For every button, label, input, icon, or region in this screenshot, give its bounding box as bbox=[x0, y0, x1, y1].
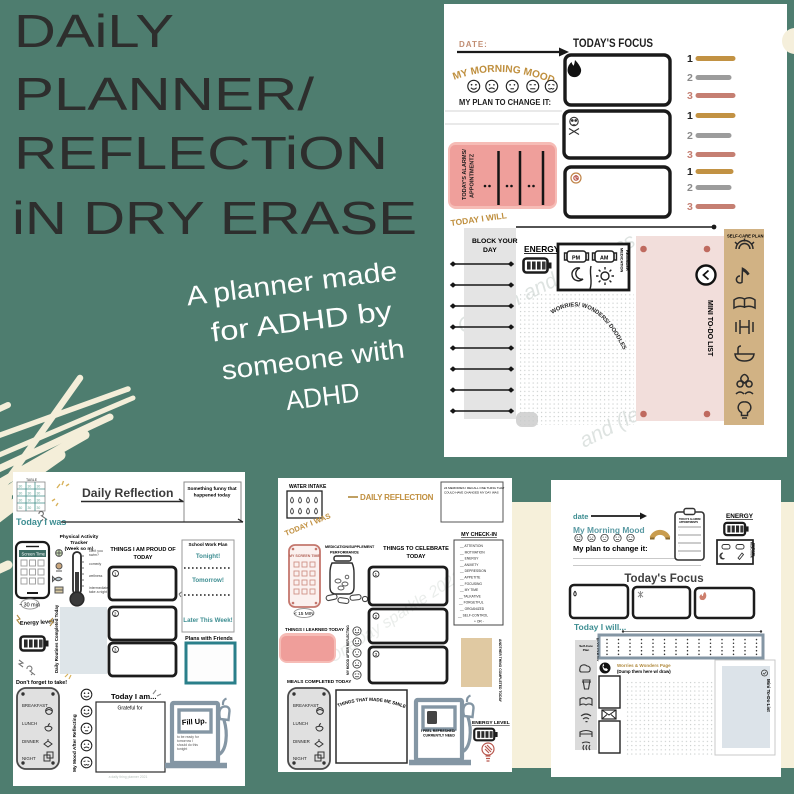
svg-text:MEDICATION: MEDICATION bbox=[620, 248, 625, 273]
svg-text:PLANNER/: PLANNER/ bbox=[14, 68, 314, 120]
svg-text:WATER INTAKE: WATER INTAKE bbox=[289, 484, 327, 490]
svg-text:DAILY REFLECTION: DAILY REFLECTION bbox=[360, 493, 434, 502]
svg-text:Today I am...: Today I am... bbox=[111, 692, 156, 701]
svg-text:Something funny that: Something funny that bbox=[187, 486, 237, 492]
svg-text:MY CHECK-IN: MY CHECK-IN bbox=[461, 532, 497, 538]
svg-text:30: 30 bbox=[37, 492, 41, 496]
svg-text:30: 30 bbox=[28, 485, 32, 489]
svg-text:take a night: take a night bbox=[89, 590, 107, 594]
svg-text:TODAY: TODAY bbox=[407, 554, 426, 560]
svg-text:swim?: swim? bbox=[89, 553, 99, 557]
svg-text:MINI TO-DO LIST: MINI TO-DO LIST bbox=[706, 300, 713, 357]
svg-text:Daily Routines Completed Today: Daily Routines Completed Today bbox=[54, 604, 59, 673]
svg-text:ENERGY: ENERGY bbox=[726, 513, 754, 520]
svg-text:TABLE: TABLE bbox=[26, 478, 38, 482]
svg-text:ENERGY: ENERGY bbox=[524, 244, 560, 254]
svg-text:30: 30 bbox=[19, 492, 23, 496]
svg-text:3: 3 bbox=[687, 149, 693, 161]
svg-text:COULD HAVE CHANGED MY DAY WAS: COULD HAVE CHANGED MY DAY WAS bbox=[444, 491, 499, 495]
svg-text:iN DRY ERASE: iN DRY ERASE bbox=[12, 192, 417, 244]
svg-text:MY PLAN TO CHANGE IT:: MY PLAN TO CHANGE IT: bbox=[459, 97, 551, 107]
svg-text:Plans with Friends: Plans with Friends bbox=[185, 636, 233, 642]
svg-text:__ ENERGY: __ ENERGY bbox=[459, 557, 479, 561]
svg-text:I FEEL REFRESHED/: I FEEL REFRESHED/ bbox=[421, 729, 455, 733]
svg-text:Physical Activity: Physical Activity bbox=[60, 534, 99, 540]
svg-text:__ APPETITE: __ APPETITE bbox=[459, 576, 481, 580]
svg-text:THINGS I AM PROUD OF: THINGS I AM PROUD OF bbox=[110, 547, 176, 553]
svg-text:1: 1 bbox=[687, 53, 693, 65]
svg-text:30: 30 bbox=[19, 485, 23, 489]
svg-text:__ FOCUSING: __ FOCUSING bbox=[459, 582, 482, 586]
svg-text:30: 30 bbox=[28, 499, 32, 503]
svg-text:(Dump them here w/ draw): (Dump them here w/ draw) bbox=[617, 669, 671, 674]
svg-text:3: 3 bbox=[687, 90, 693, 102]
svg-text:PM: PM bbox=[572, 256, 581, 262]
svg-text:Tomorrow!: Tomorrow! bbox=[192, 577, 224, 584]
svg-text:2: 2 bbox=[687, 130, 693, 142]
svg-text:DAiLY: DAiLY bbox=[14, 5, 174, 57]
svg-text:MY SCREEN TIME: MY SCREEN TIME bbox=[289, 554, 320, 558]
svg-text:REMINDER: REMINDER bbox=[625, 250, 630, 271]
svg-text:30: 30 bbox=[37, 499, 41, 503]
svg-text:tonight: tonight bbox=[177, 747, 187, 751]
svg-text:1: 1 bbox=[687, 166, 693, 178]
svg-text:30: 30 bbox=[28, 492, 32, 496]
svg-text:THINGS TO CELEBRATE: THINGS TO CELEBRATE bbox=[383, 546, 449, 552]
svg-text:a daily thing planner 2021: a daily thing planner 2021 bbox=[109, 775, 148, 779]
svg-text:3: 3 bbox=[687, 201, 693, 213]
svg-text:__ DEPRESSION: __ DEPRESSION bbox=[459, 569, 487, 573]
svg-text:CURRENTLY NEED: CURRENTLY NEED bbox=[423, 734, 455, 738]
svg-text:__ TALKATIVE: __ TALKATIVE bbox=[458, 594, 482, 598]
svg-text:My Mood After Reflecting: My Mood After Reflecting bbox=[72, 714, 78, 772]
svg-text:1: 1 bbox=[687, 110, 693, 122]
svg-text:~ 30 min: ~ 30 min bbox=[19, 603, 40, 609]
svg-text:__ MOTIVATION: __ MOTIVATION bbox=[459, 550, 485, 554]
svg-text:30: 30 bbox=[37, 506, 41, 510]
svg-text:__ FORGETFUL: __ FORGETFUL bbox=[458, 601, 484, 605]
svg-text:Worries & Wonders Page: Worries & Wonders Page bbox=[617, 663, 671, 668]
svg-text:SELF-CARE PLAN: SELF-CARE PLAN bbox=[727, 234, 764, 239]
svg-text:__ SELF-CONTROL: __ SELF-CONTROL bbox=[457, 613, 488, 617]
svg-text:Today I was: Today I was bbox=[16, 517, 66, 527]
svg-text:PERFORMANCE: PERFORMANCE bbox=[330, 551, 359, 555]
svg-text:happened today: happened today bbox=[194, 493, 231, 499]
svg-text:Today's Focus: Today's Focus bbox=[624, 573, 703, 585]
svg-text:MEALS COMPLETED TODAY: MEALS COMPLETED TODAY bbox=[287, 679, 352, 684]
svg-text:30: 30 bbox=[28, 506, 32, 510]
svg-text:TODAY'S ALARMS/: TODAY'S ALARMS/ bbox=[462, 149, 468, 200]
svg-text:APPOINTMENTZ: APPOINTMENTZ bbox=[470, 153, 476, 198]
svg-text:TODAY: TODAY bbox=[134, 555, 153, 561]
svg-text:DAY: DAY bbox=[483, 247, 497, 254]
svg-text:Today I will...: Today I will... bbox=[574, 622, 626, 632]
svg-text:ANOTHER THING COMPLETED TODAY: ANOTHER THING COMPLETED TODAY bbox=[498, 639, 502, 703]
svg-text:Plan: Plan bbox=[583, 648, 590, 652]
svg-text:24 MEMORIES I RECALL ONE THING: 24 MEMORIES I RECALL ONE THING THAT bbox=[444, 486, 505, 490]
svg-text:date: date bbox=[573, 512, 588, 521]
svg-text:Tonight!: Tonight! bbox=[196, 553, 220, 560]
svg-text:BLOCK YOUR: BLOCK YOUR bbox=[472, 238, 518, 245]
svg-text:2: 2 bbox=[687, 182, 693, 194]
svg-text:APPOINTMENTS: APPOINTMENTS bbox=[679, 521, 698, 524]
svg-text:MY MOOD AFTER REFLECTING: MY MOOD AFTER REFLECTING bbox=[346, 625, 350, 675]
svg-text:MEDICATION/SUPPLEMENT: MEDICATION/SUPPLEMENT bbox=[325, 545, 375, 549]
svg-text:Tracker: Tracker bbox=[70, 540, 88, 546]
svg-text:Later This Week!: Later This Week! bbox=[183, 617, 232, 624]
svg-text:2: 2 bbox=[687, 72, 693, 84]
svg-text:__ ATTENTION: __ ATTENTION bbox=[459, 544, 483, 548]
svg-text:Don't forget to take!: Don't forget to take! bbox=[16, 680, 67, 686]
svg-text:wellness: wellness bbox=[89, 574, 103, 578]
svg-text:Grateful for: Grateful for bbox=[117, 706, 142, 712]
svg-text:__ ANXIETY: __ ANXIETY bbox=[459, 563, 479, 567]
svg-text:DATE:: DATE: bbox=[459, 40, 488, 49]
svg-text:30: 30 bbox=[19, 499, 23, 503]
svg-text:Mini To-Do List: Mini To-Do List bbox=[766, 679, 771, 712]
svg-text:30: 30 bbox=[19, 506, 23, 510]
svg-text:AM: AM bbox=[600, 256, 609, 262]
svg-text:Daily Reflection: Daily Reflection bbox=[82, 486, 173, 500]
svg-text:comedy: comedy bbox=[89, 562, 102, 566]
svg-text:Screen Time: Screen Time bbox=[22, 552, 46, 557]
svg-text:TODAY'S FOCUS: TODAY'S FOCUS bbox=[573, 38, 653, 50]
svg-text:__ ORGANIZED: __ ORGANIZED bbox=[459, 607, 485, 611]
svg-text:REFLECTiON: REFLECTiON bbox=[14, 127, 388, 179]
svg-text:THINGS I LEARNED TODAY: THINGS I LEARNED TODAY bbox=[285, 627, 344, 632]
svg-text:REMINDER: REMINDER bbox=[752, 543, 755, 557]
svg-text:< 15 MIN: < 15 MIN bbox=[294, 611, 314, 617]
svg-text:My plan to change it:: My plan to change it: bbox=[573, 544, 648, 553]
svg-text:My Morning Mood: My Morning Mood bbox=[573, 525, 645, 535]
svg-text:__ MY TIME: __ MY TIME bbox=[459, 588, 479, 592]
svg-text:ENERGY LEVEL: ENERGY LEVEL bbox=[472, 720, 510, 726]
svg-text:Fill Up.: Fill Up. bbox=[182, 716, 208, 727]
svg-text:+ OR -: + OR - bbox=[474, 620, 484, 624]
svg-text:30: 30 bbox=[37, 485, 41, 489]
svg-text:School Work Plan: School Work Plan bbox=[189, 542, 228, 547]
